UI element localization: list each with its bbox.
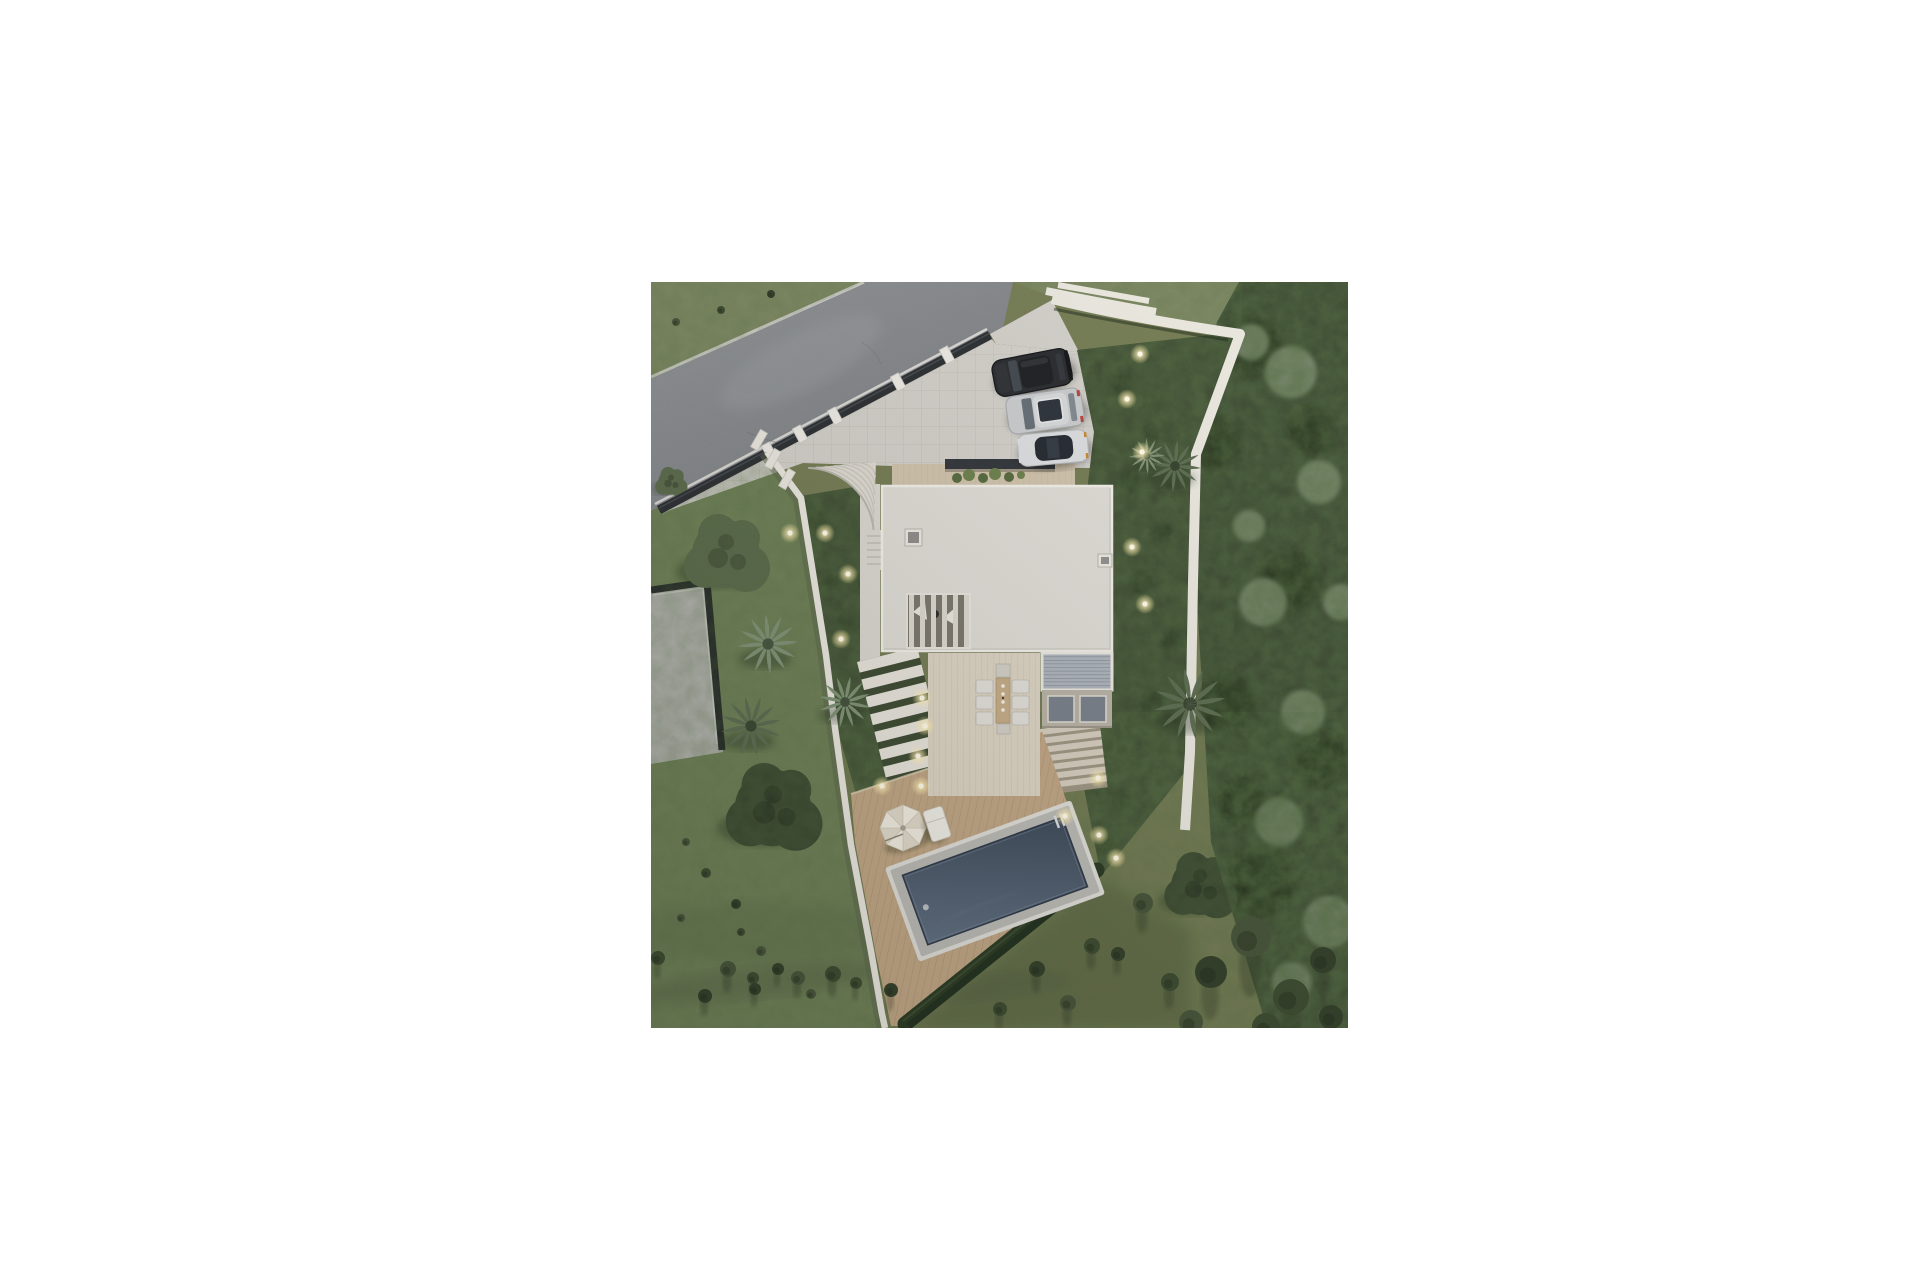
page-canvas [0,0,1920,1280]
villa-aerial-render [651,282,1348,1028]
aerial-render-photo [651,282,1348,1028]
film-grain [651,282,1348,1028]
